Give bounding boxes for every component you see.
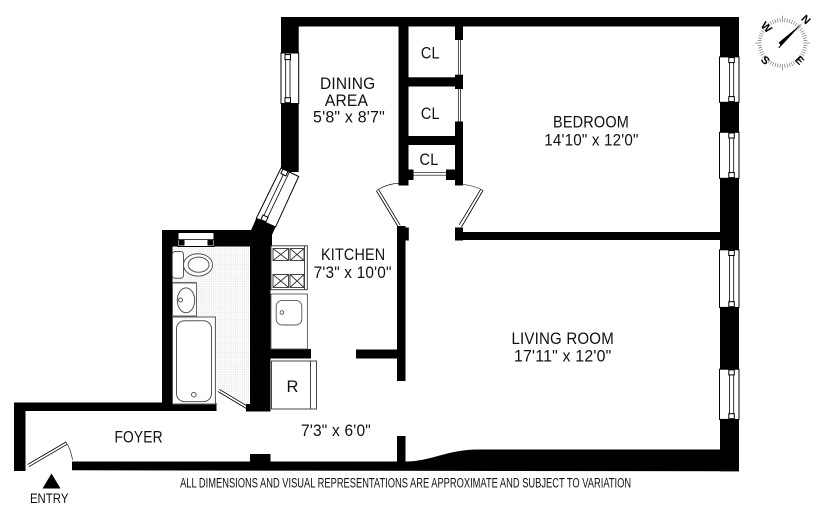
svg-text:BEDROOM: BEDROOM bbox=[553, 114, 629, 132]
svg-text:DINING: DINING bbox=[320, 75, 375, 93]
svg-text:5'8" x 8'7": 5'8" x 8'7" bbox=[313, 109, 385, 127]
svg-text:KITCHEN: KITCHEN bbox=[321, 246, 385, 264]
svg-text:7'3" x 10'0": 7'3" x 10'0" bbox=[314, 264, 392, 282]
svg-text:14'10" x 12'0": 14'10" x 12'0" bbox=[544, 132, 638, 150]
svg-text:ALL DIMENSIONS AND VISUAL REPR: ALL DIMENSIONS AND VISUAL REPRESENTATION… bbox=[180, 475, 631, 490]
svg-text:FOYER: FOYER bbox=[114, 429, 162, 447]
svg-text:AREA: AREA bbox=[325, 92, 368, 110]
svg-text:CL: CL bbox=[420, 151, 439, 169]
svg-text:LIVING ROOM: LIVING ROOM bbox=[511, 330, 614, 348]
svg-text:CL: CL bbox=[421, 105, 440, 123]
svg-text:CL: CL bbox=[421, 45, 440, 63]
svg-text:7'3" x 6'0": 7'3" x 6'0" bbox=[301, 422, 371, 440]
svg-text:17'11" x 12'0": 17'11" x 12'0" bbox=[514, 348, 612, 366]
svg-text:R: R bbox=[286, 378, 298, 396]
svg-text:ENTRY: ENTRY bbox=[30, 491, 69, 506]
